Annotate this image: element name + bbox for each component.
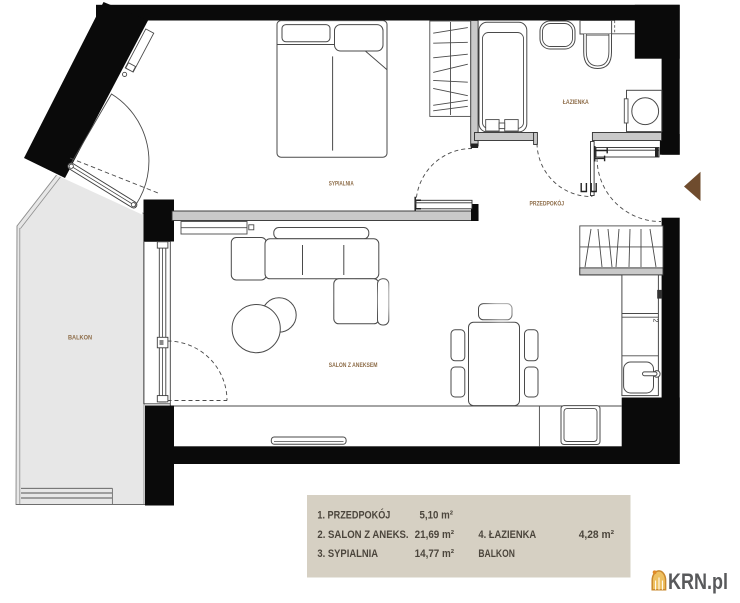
svg-text:ŁAZIENKA: ŁAZIENKA xyxy=(563,99,590,106)
svg-text:2: 2 xyxy=(652,319,659,323)
svg-text:BALKON: BALKON xyxy=(478,548,515,560)
svg-text:2. SALON Z ANEKS.: 2. SALON Z ANEKS. xyxy=(317,529,408,541)
svg-text:KRN.pl: KRN.pl xyxy=(668,569,728,594)
svg-text:BALKON: BALKON xyxy=(68,334,92,341)
svg-text:4,28 m²: 4,28 m² xyxy=(579,529,615,541)
svg-text:SYPIALNIA: SYPIALNIA xyxy=(329,181,354,188)
svg-text:14,77 m²: 14,77 m² xyxy=(415,548,455,560)
svg-text:21,69 m²: 21,69 m² xyxy=(415,529,455,541)
svg-text:4. ŁAZIENKA: 4. ŁAZIENKA xyxy=(478,529,536,541)
svg-text:5,10 m²: 5,10 m² xyxy=(420,510,454,522)
svg-text:PRZEDPOKÓJ: PRZEDPOKÓJ xyxy=(530,200,565,208)
svg-text:3. SYPIALNIA: 3. SYPIALNIA xyxy=(317,548,378,560)
svg-text:SALON Z ANEKSEM: SALON Z ANEKSEM xyxy=(329,362,378,369)
svg-text:1. PRZEDPOKÓJ: 1. PRZEDPOKÓJ xyxy=(317,509,390,522)
